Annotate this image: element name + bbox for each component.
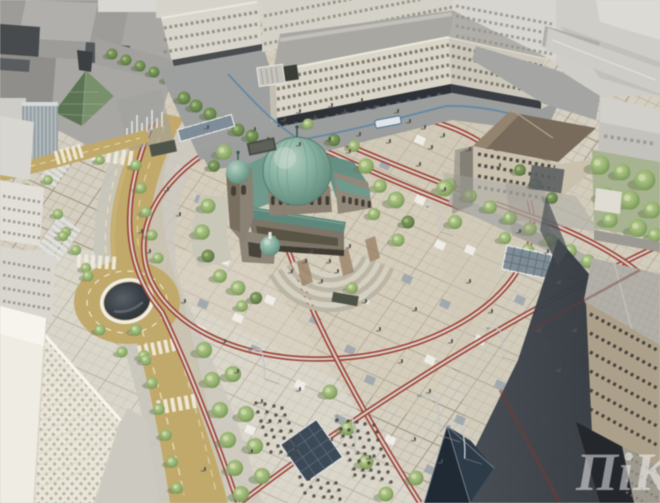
svg-text:ПіК: ПіК bbox=[575, 442, 660, 502]
